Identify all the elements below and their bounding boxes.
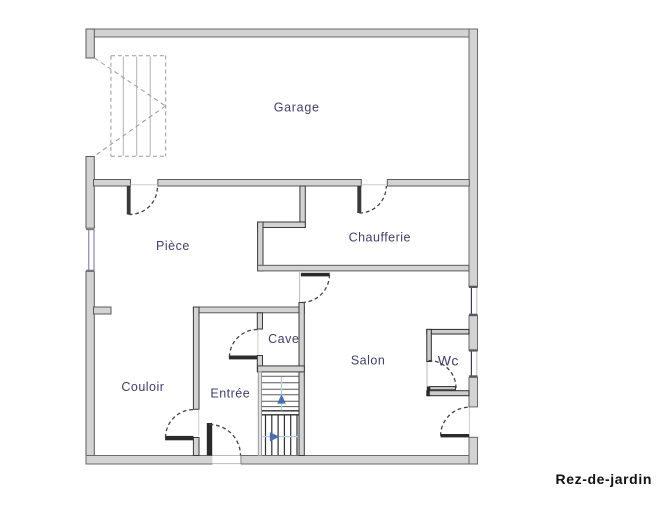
svg-text:Garage: Garage [274,101,320,115]
svg-text:Rez-de-jardin: Rez-de-jardin [556,471,652,487]
svg-text:Pièce: Pièce [156,239,190,253]
svg-text:Salon: Salon [351,354,385,368]
svg-text:Wc: Wc [438,353,459,369]
svg-text:Cave: Cave [268,332,299,346]
svg-text:Entrée: Entrée [210,387,250,401]
svg-text:Chaufferie: Chaufferie [349,230,411,244]
svg-text:Couloir: Couloir [121,380,164,394]
